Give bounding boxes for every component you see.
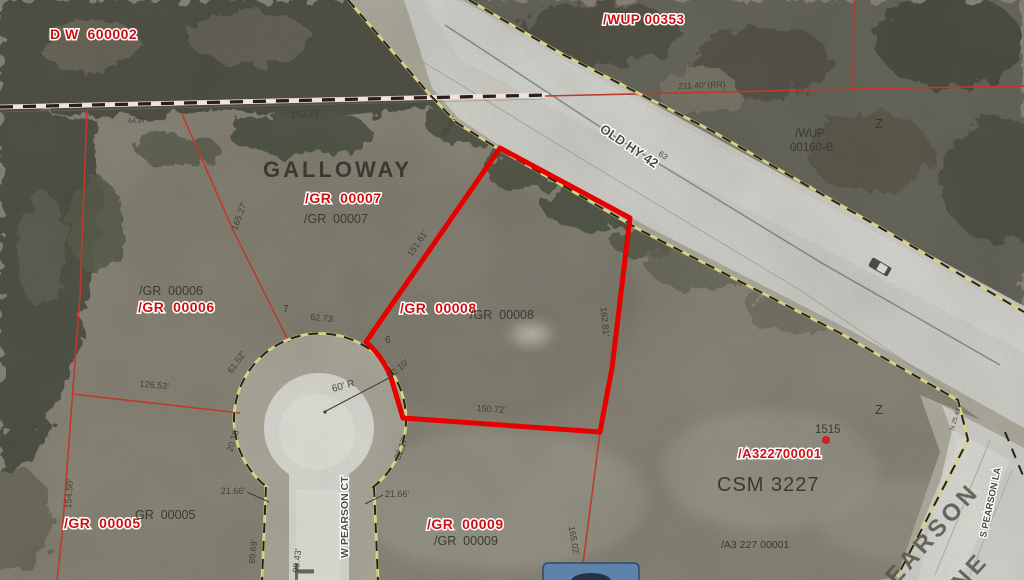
parcel-label-gr00005-gray: GR 00005	[135, 508, 196, 522]
csm-3227-label: CSM 3227	[717, 474, 820, 496]
parcel-label-gr00008-gray: /GR 00008	[470, 308, 534, 322]
subdivision-label: GALLOWAY	[263, 157, 412, 182]
dim-64-57: 64.57	[128, 118, 146, 126]
parcel-line-north-branch	[853, 0, 854, 89]
street-label-w-pearson-ct: W PEARSON CT	[339, 476, 351, 558]
parcel-label-wup00160-line2: 00160-B	[790, 142, 834, 154]
parcel-label-gr00006[interactable]: /GR 00006	[138, 299, 215, 315]
dim-21-66-left: 21.66'	[221, 486, 246, 496]
parcel-label-gr00007-gray: /GR 00007	[304, 212, 368, 226]
dim-21-66-right: 21.66'	[385, 489, 410, 499]
parcel-label-gr00008[interactable]: /GR 00008	[400, 300, 477, 316]
parcel-label-wup00353[interactable]: /WUP 00353	[603, 12, 685, 27]
parcel-label-dw600002[interactable]: D W 600002	[50, 26, 137, 42]
parcel-label-gr00009[interactable]: /GR 00009	[427, 516, 504, 532]
lot-number-6: 6	[385, 335, 391, 346]
parcel-label-gr00005[interactable]: /GR 00005	[64, 515, 141, 531]
gis-map-canvas[interactable]: D W 600002 /WUP 00353 /GR 00007 /GR 0000…	[0, 0, 1024, 580]
parcel-label-gr00009-gray: /GR 00009	[434, 534, 498, 548]
z-marker-2: Z	[875, 402, 883, 417]
parcel-label-gr00007[interactable]: /GR 00007	[305, 190, 382, 206]
address-label-1515: 1515	[815, 424, 841, 436]
parcel-label-a322700001-gray: /A3 227 00001	[721, 539, 789, 551]
dim-211-40-rr: 211.40' (RR)	[678, 79, 726, 91]
bottom-popup-partial[interactable]	[543, 563, 639, 580]
parcel-label-wup00160-line1: /WUP	[795, 128, 825, 140]
dim-154-50: 154.50'	[63, 479, 75, 509]
dim-153-21: 153.21'	[291, 108, 321, 120]
lot-number-7: 7	[283, 304, 289, 315]
parcel-label-gr00006-gray: /GR 00006	[139, 284, 203, 298]
parcel-label-a322700001[interactable]: /A322700001	[738, 446, 822, 461]
dim-150-72: 150.72'	[476, 403, 506, 415]
z-marker-1: Z	[875, 116, 883, 131]
address-point-1515[interactable]	[822, 436, 830, 444]
